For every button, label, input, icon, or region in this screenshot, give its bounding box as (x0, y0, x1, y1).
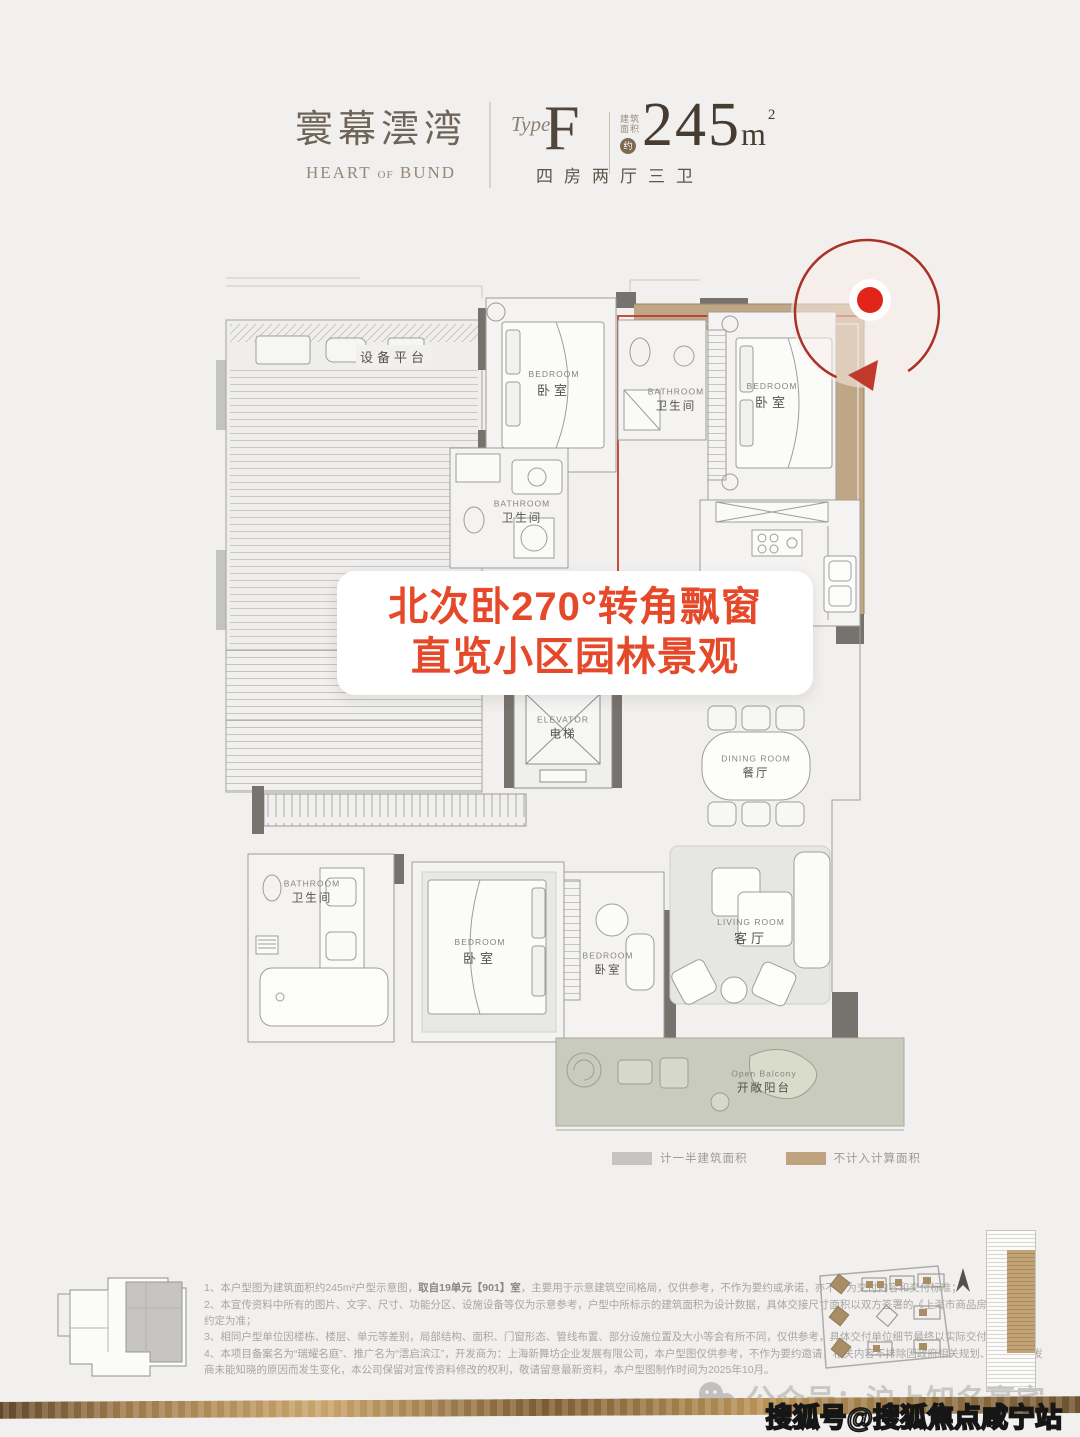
footnote-1-unit: 取自19单元【901】室 (418, 1282, 521, 1294)
north-arrow-icon (956, 1268, 970, 1292)
sohu-watermark-text: 搜狐号@搜狐焦点咸宁站 (766, 1396, 1062, 1435)
room-label-cn: 卫生间 (648, 398, 704, 414)
room-label-bathroom-north: BATHROOM 卫生间 (648, 387, 704, 414)
key-plan-highlighted-unit (126, 1282, 182, 1362)
building-elevation-thumbnail (986, 1230, 1036, 1392)
room-label-cn: 客厅 (717, 928, 785, 947)
room-label-cn: 餐厅 (721, 765, 791, 781)
room-label-living: LIVING ROOM 客厅 (717, 917, 785, 947)
key-plan-drawing (50, 1258, 198, 1393)
feature-callout: 北次卧270°转角飘窗 直览小区园林景观 (337, 571, 813, 695)
legend-item-excluded-area: 不计入计算面积 (786, 1150, 922, 1166)
header-divider (489, 102, 491, 188)
room-label-en: BEDROOM (455, 937, 506, 947)
legend-swatch-gray (612, 1152, 652, 1165)
site-buildings (862, 1274, 944, 1355)
room-label-cn: 电梯 (537, 726, 589, 742)
legend-swatch-tan (786, 1152, 826, 1165)
site-building-fills (866, 1277, 931, 1352)
legend-label: 计一半建筑面积 (660, 1150, 748, 1166)
room-label-en: BATHROOM (284, 879, 340, 889)
brand-name-en: HEART OF BUND (270, 163, 492, 183)
type-value: F (544, 96, 580, 160)
area-superscript: 2 (768, 107, 778, 123)
room-label-cn: 开敞阳台 (731, 1080, 796, 1096)
area-prefix-line2: 面积 (620, 124, 640, 134)
room-label-cn: 卧室 (529, 380, 580, 399)
brand-name-cn: 寰幕澐湾 (270, 98, 492, 153)
room-label-dining: DINING ROOM 餐厅 (721, 754, 791, 781)
room-label-cn: 卫生间 (494, 510, 550, 526)
room-label-bedroom-southeast: BEDROOM 卧室 (583, 951, 634, 978)
room-label-en: BATHROOM (494, 499, 550, 509)
room-label-bedroom-north: BEDROOM 卧室 (529, 369, 580, 399)
area-legend: 计一半建筑面积 不计入计算面积 (612, 1150, 921, 1166)
area-value: 245m2 (642, 94, 777, 156)
footnote-1-pre: 1、本户型图为建筑面积约245m²户型示意图， (204, 1282, 418, 1294)
room-label-cn: 卧室 (747, 392, 798, 411)
area-number: 245 (642, 91, 741, 159)
room-label-en: Open Balcony (731, 1069, 796, 1079)
area-prefix-line1: 建筑 (620, 114, 640, 124)
site-buildings-highlighted (829, 1274, 851, 1358)
area-approx-badge: 约 (620, 138, 636, 154)
room-label-en: BATHROOM (648, 387, 704, 397)
brand-en-bund: BUND (400, 163, 456, 182)
room-label-en: DINING ROOM (721, 754, 791, 764)
room-label-bathroom-south: BATHROOM 卫生间 (284, 879, 340, 906)
room-label-cn: 卧室 (583, 962, 634, 978)
site-plan-thumbnail (810, 1260, 1010, 1383)
area-prefix: 建筑 面积 (620, 114, 640, 134)
room-label-bedroom-northeast: BEDROOM 卧室 (747, 381, 798, 411)
legend-item-half-area: 计一半建筑面积 (612, 1150, 748, 1166)
room-label-en: BEDROOM (747, 381, 798, 391)
key-plan-thumbnail (50, 1258, 198, 1398)
room-label-cn: 卧室 (455, 948, 506, 967)
site-plan-drawing (810, 1260, 1010, 1378)
callout-line1: 北次卧270°转角飘窗 (337, 582, 813, 632)
brand-en-of: OF (378, 169, 394, 181)
bathroom-north (618, 320, 706, 440)
poster-page: 寰幕澐湾 HEART OF BUND Type F 建筑 面积 约 245m2 … (0, 0, 1080, 1437)
room-label-equipment: 设备平台 (356, 345, 432, 367)
wardrobe-corridor (252, 786, 526, 834)
room-label-bathroom-middle: BATHROOM 卫生间 (494, 499, 550, 526)
brand-en-heart: HEART (306, 163, 371, 182)
room-label-en: LIVING ROOM (717, 917, 785, 927)
brand-block: 寰幕澐湾 HEART OF BUND (270, 98, 492, 183)
room-label-en: BEDROOM (583, 951, 634, 961)
legend-label: 不计入计算面积 (834, 1150, 922, 1166)
room-label-bedroom-south: BEDROOM 卧室 (455, 937, 506, 967)
layout-summary: 四房两厅三卫 (502, 162, 738, 187)
callout-line2: 直览小区园林景观 (337, 632, 813, 682)
area-unit: m (741, 116, 768, 152)
room-label-cn: 卫生间 (284, 890, 340, 906)
corner-dot (857, 287, 883, 313)
room-label-en: ELEVATOR (537, 715, 589, 725)
balcony-area (556, 1038, 904, 1130)
room-label-en: BEDROOM (529, 369, 580, 379)
room-label-elevator: ELEVATOR 电梯 (537, 715, 589, 742)
room-label-balcony: Open Balcony 开敞阳台 (731, 1069, 796, 1096)
elevation-highlighted-floors (1007, 1250, 1035, 1352)
room-label-cn: 设备平台 (360, 347, 428, 366)
